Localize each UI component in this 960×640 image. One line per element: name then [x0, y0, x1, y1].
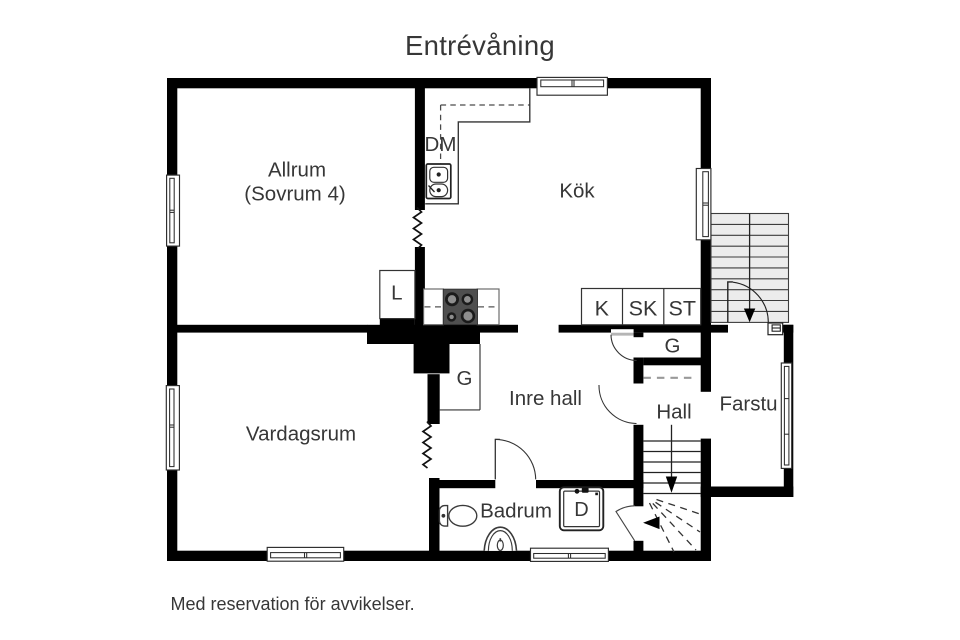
svg-text:Allrum: Allrum — [268, 158, 326, 181]
svg-text:D: D — [574, 499, 588, 521]
svg-text:K: K — [595, 297, 610, 321]
svg-text:DM: DM — [425, 133, 457, 156]
svg-text:(Sovrum 4): (Sovrum 4) — [244, 182, 345, 205]
svg-text:Hall: Hall — [656, 400, 691, 423]
svg-text:L: L — [391, 282, 402, 305]
svg-text:Entrévåning: Entrévåning — [405, 30, 555, 61]
svg-text:Med reservation för avvikelser: Med reservation för avvikelser. — [171, 594, 415, 614]
svg-text:G: G — [457, 367, 473, 390]
svg-text:G: G — [665, 335, 681, 358]
svg-text:Vardagsrum: Vardagsrum — [246, 422, 356, 445]
svg-text:ST: ST — [669, 297, 696, 321]
svg-text:Badrum: Badrum — [480, 499, 552, 522]
svg-text:SK: SK — [629, 297, 658, 321]
svg-text:Farstu: Farstu — [719, 393, 777, 416]
svg-text:Inre hall: Inre hall — [509, 387, 582, 410]
svg-text:Kök: Kök — [559, 180, 595, 203]
